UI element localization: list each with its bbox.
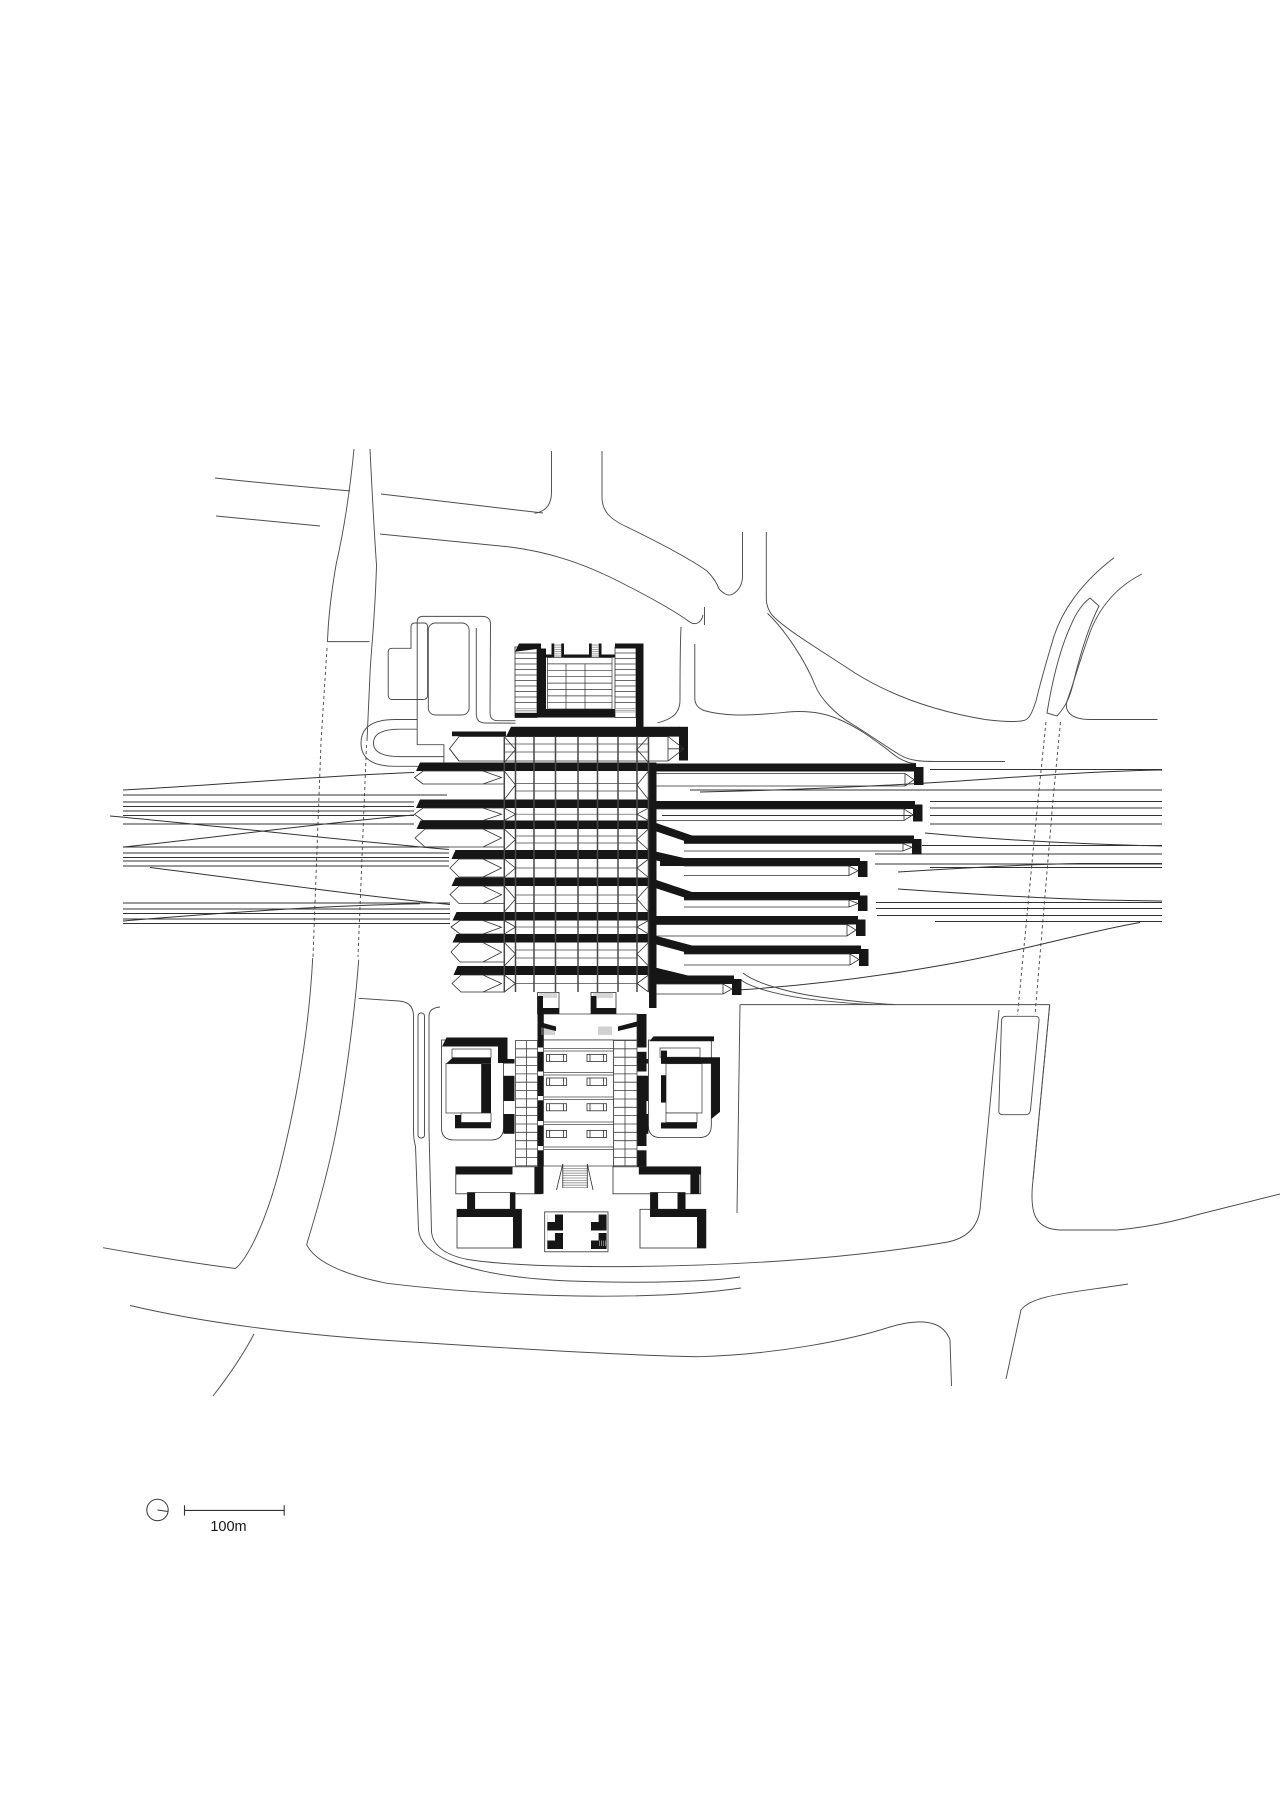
svg-text:100m: 100m [210, 1519, 246, 1535]
